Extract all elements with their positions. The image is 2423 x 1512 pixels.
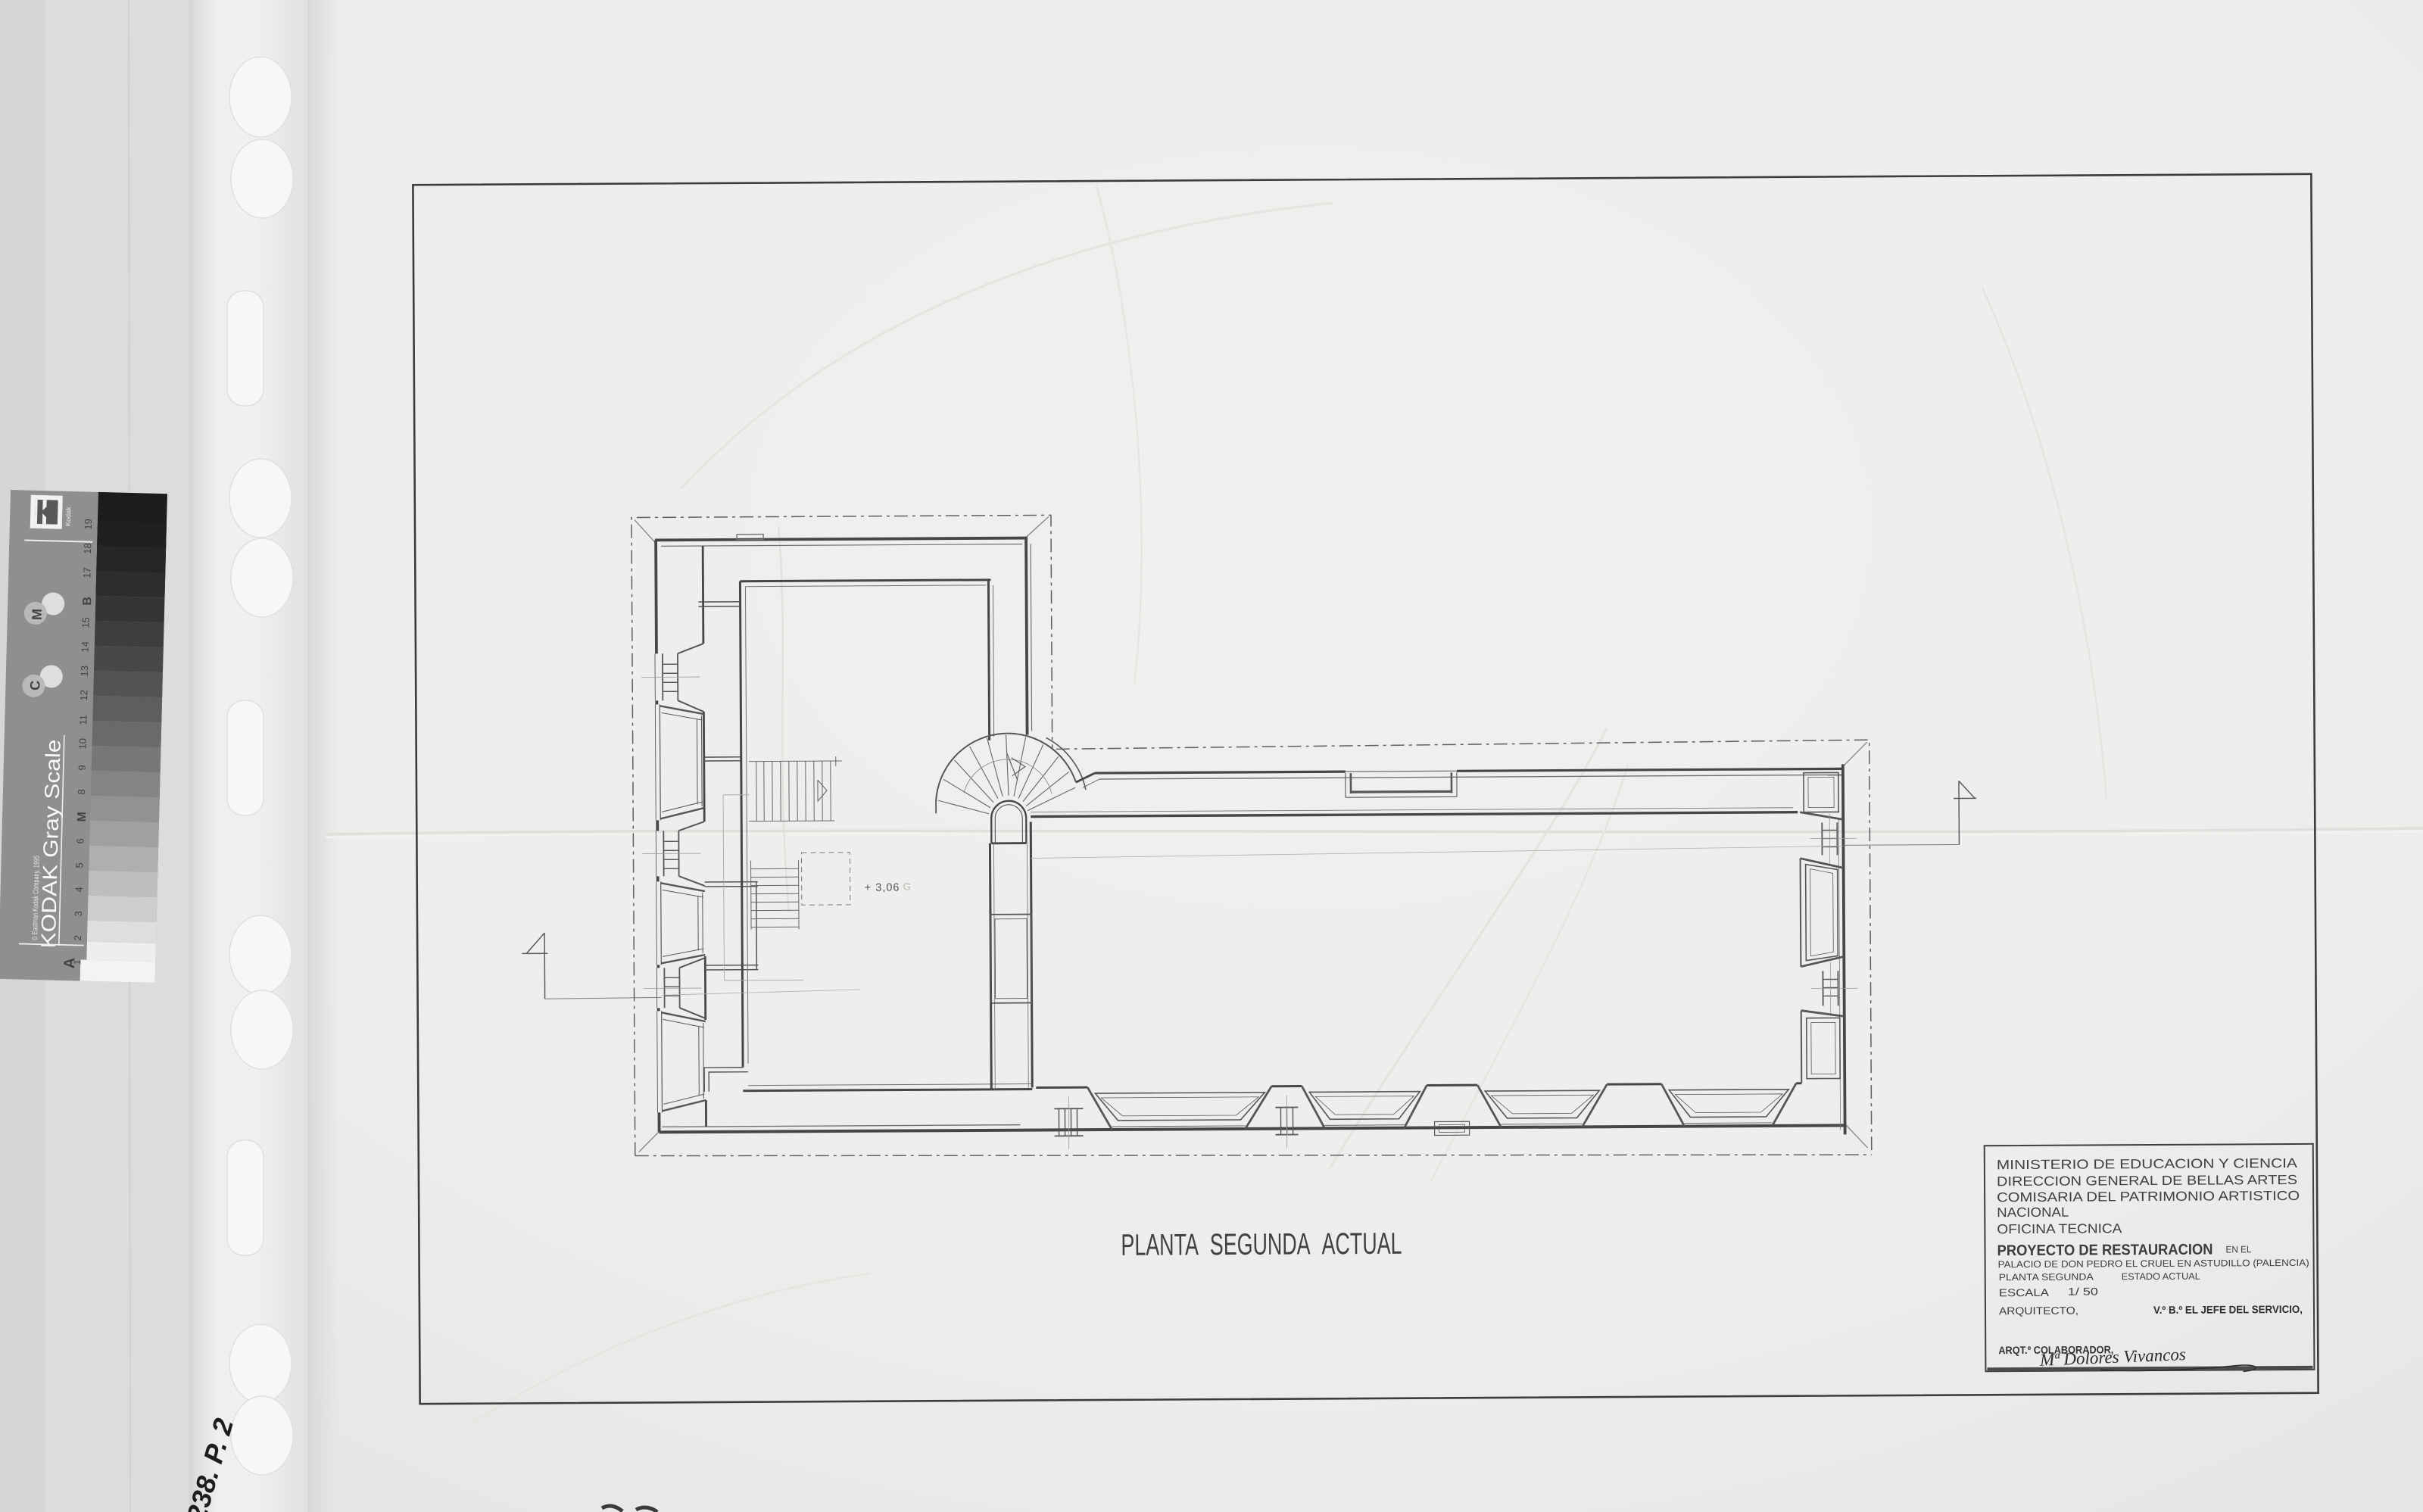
svg-text:C: C <box>27 681 42 691</box>
svg-text:DIRECCION GENERAL DE BELLAS AR: DIRECCION GENERAL DE BELLAS ARTES <box>1997 1172 2297 1189</box>
svg-text:15: 15 <box>80 617 91 628</box>
svg-text:9: 9 <box>76 765 88 771</box>
svg-text:1: 1 <box>71 959 83 965</box>
svg-text:4: 4 <box>73 887 85 893</box>
svg-text:B: B <box>81 597 94 606</box>
svg-text:19: 19 <box>83 519 94 530</box>
svg-text:ARQUITECTO,: ARQUITECTO, <box>1999 1305 2078 1317</box>
svg-text:10: 10 <box>76 738 88 750</box>
svg-text:3: 3 <box>73 911 84 917</box>
svg-text:18: 18 <box>82 543 93 554</box>
svg-text:5: 5 <box>73 862 85 868</box>
svg-text:PROYECTO DE RESTAURACION: PROYECTO DE RESTAURACION <box>1997 1242 2213 1260</box>
svg-text:MINISTERIO DE EDUCACION Y CIEN: MINISTERIO DE EDUCACION Y CIENCIA <box>1997 1155 2297 1172</box>
svg-text:17: 17 <box>81 567 92 578</box>
svg-text:+ 3,06: + 3,06 <box>865 882 900 894</box>
svg-text:2: 2 <box>72 935 83 941</box>
svg-text:M: M <box>30 609 45 621</box>
svg-text:PALACIO DE DON PEDRO EL CRUEL: PALACIO DE DON PEDRO EL CRUEL EN ASTUDIL… <box>1998 1258 2309 1270</box>
svg-text:13: 13 <box>79 666 90 677</box>
svg-text:M: M <box>76 812 89 822</box>
svg-text:PLANTA SEGUNDA ACTUAL: PLANTA SEGUNDA ACTUAL <box>1121 1227 1402 1262</box>
svg-text:OFICINA TECNICA: OFICINA TECNICA <box>1997 1221 2122 1236</box>
svg-text:NACIONAL: NACIONAL <box>1997 1205 2069 1221</box>
svg-text:Kodak: Kodak <box>64 507 73 526</box>
svg-text:G: G <box>903 881 911 892</box>
svg-text:11: 11 <box>77 715 89 725</box>
svg-text:8: 8 <box>76 789 87 795</box>
svg-text:ESTADO ACTUAL: ESTADO ACTUAL <box>2122 1271 2200 1283</box>
svg-text:ESCALA: ESCALA <box>1999 1286 2050 1298</box>
svg-text:14: 14 <box>80 641 91 653</box>
svg-text:12: 12 <box>78 690 89 701</box>
svg-text:COMISARIA DEL PATRIMONIO ARTIS: COMISARIA DEL PATRIMONIO ARTISTICO <box>1997 1188 2300 1205</box>
svg-text:PLANTA SEGUNDA: PLANTA SEGUNDA <box>1999 1271 2094 1283</box>
svg-text:V.º B.º EL JEFE DEL SERVICIO,: V.º B.º EL JEFE DEL SERVICIO, <box>2153 1303 2303 1316</box>
svg-text:EN EL: EN EL <box>2225 1244 2251 1255</box>
svg-text:6: 6 <box>74 838 86 844</box>
svg-text:1/ 50: 1/ 50 <box>2068 1285 2098 1297</box>
